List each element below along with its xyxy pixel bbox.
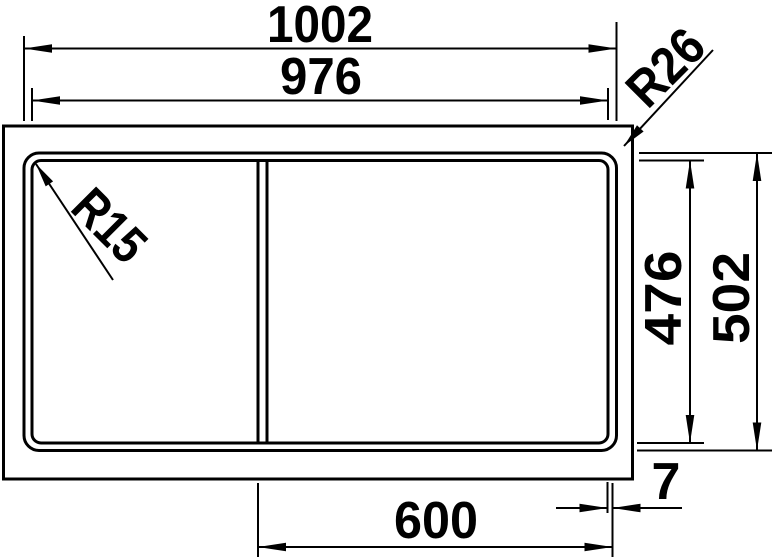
rim-width-label: 976 [280, 48, 362, 106]
dim-arrowhead-left-icon [24, 44, 52, 53]
dim-arrowhead-left-icon [32, 96, 60, 105]
sink-outline [4, 126, 633, 479]
technical-drawing-canvas: 1002 976 476 502 600 [0, 0, 775, 558]
dim-arrowhead-right-icon [585, 543, 613, 552]
right-bowl-width-label: 600 [394, 492, 478, 550]
dim-arrowhead-bottom-icon [686, 415, 695, 443]
dim-arrowhead-right-icon [589, 44, 617, 53]
dim-arrowhead-right-icon [580, 96, 608, 105]
dim-arrowhead-top-icon [686, 161, 695, 189]
dimension-right-bowl-width: 600 [258, 483, 613, 557]
outer-edge-rect [4, 126, 633, 479]
dim-arrowhead-pointing-left-icon [613, 504, 641, 513]
overall-depth-label: 502 [703, 252, 761, 344]
dim-arrowhead-pointing-right-icon [580, 504, 608, 513]
rim-corner-radius-label: R26 [615, 17, 717, 119]
edge-gap-label: 7 [652, 453, 681, 511]
dim-arrowhead-bottom-icon [753, 423, 762, 451]
dim-arrowhead-top-icon [753, 153, 762, 181]
dimension-rim-width: 976 [32, 48, 608, 121]
bowl-depth-label: 476 [635, 251, 693, 346]
overall-width-label: 1002 [267, 0, 373, 54]
dim-arrowhead-left-icon [258, 543, 286, 552]
dimension-bowl-depth: 476 [635, 161, 704, 444]
